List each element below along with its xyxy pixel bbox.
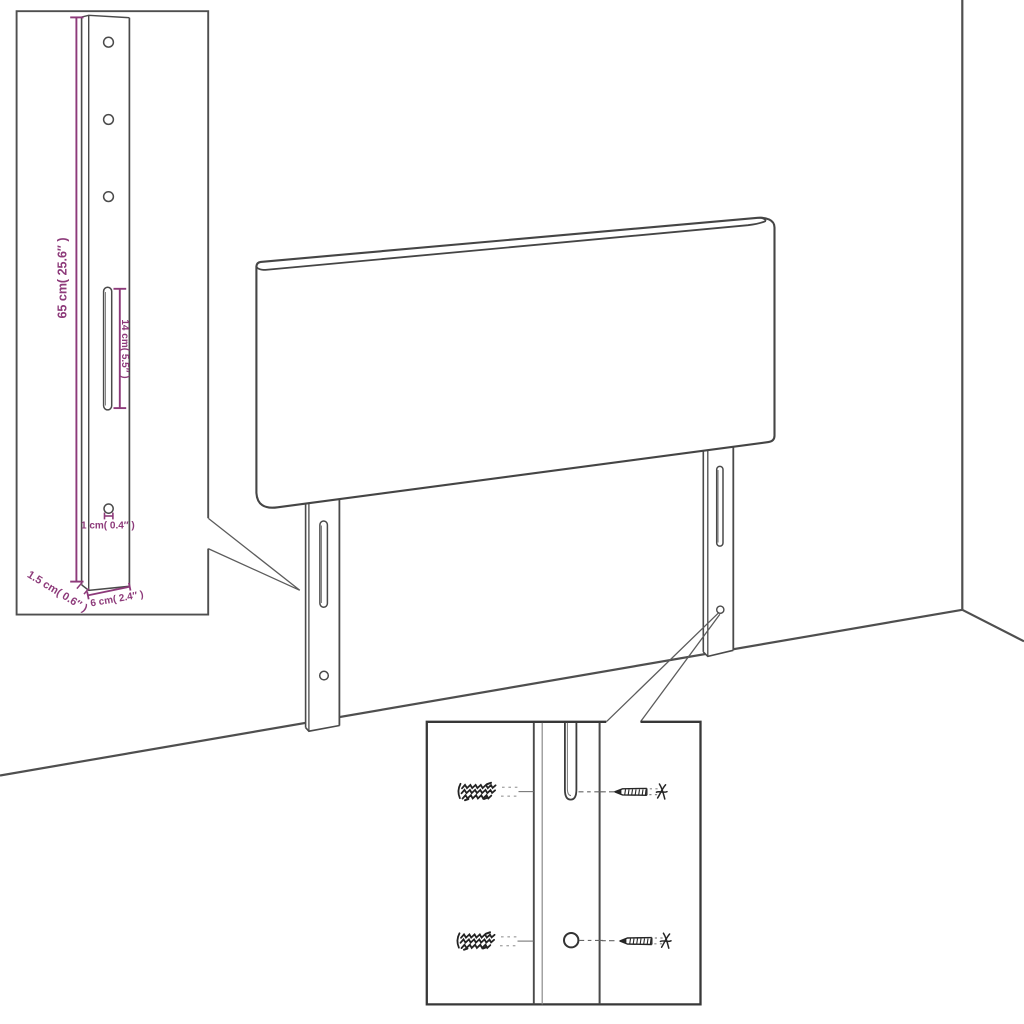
svg-text:14 cm( 5.5″ ): 14 cm( 5.5″ ) (119, 319, 130, 378)
svg-text:65 cm( 25.6″ ): 65 cm( 25.6″ ) (55, 237, 69, 318)
svg-text:1 cm( 0.4″ ): 1 cm( 0.4″ ) (81, 521, 135, 532)
